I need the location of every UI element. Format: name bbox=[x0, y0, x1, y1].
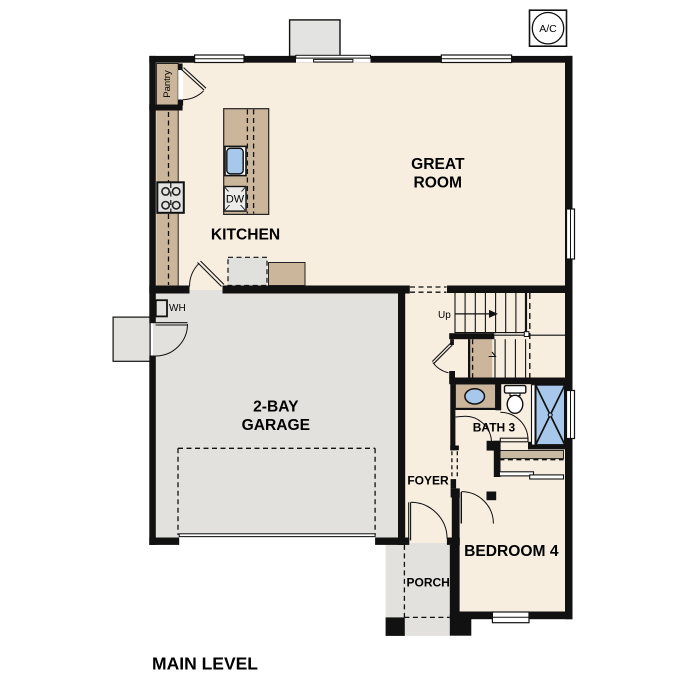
svg-text:GREAT: GREAT bbox=[411, 156, 465, 173]
svg-text:WH: WH bbox=[169, 303, 186, 314]
svg-text:GARAGE: GARAGE bbox=[242, 417, 310, 434]
svg-text:Up: Up bbox=[438, 310, 451, 321]
svg-text:KITCHEN: KITCHEN bbox=[211, 227, 280, 244]
svg-text:2-BAY: 2-BAY bbox=[253, 398, 299, 415]
svg-text:BEDROOM 4: BEDROOM 4 bbox=[464, 543, 559, 560]
svg-text:Pantry: Pantry bbox=[162, 70, 173, 98]
svg-text:ROOM: ROOM bbox=[414, 175, 463, 192]
svg-text:DW: DW bbox=[226, 194, 245, 206]
svg-text:A/C: A/C bbox=[539, 23, 557, 35]
svg-text:BATH 3: BATH 3 bbox=[473, 421, 516, 435]
svg-text:MAIN LEVEL: MAIN LEVEL bbox=[152, 654, 258, 674]
svg-text:FOYER: FOYER bbox=[407, 473, 449, 487]
svg-text:PORCH: PORCH bbox=[407, 575, 450, 589]
